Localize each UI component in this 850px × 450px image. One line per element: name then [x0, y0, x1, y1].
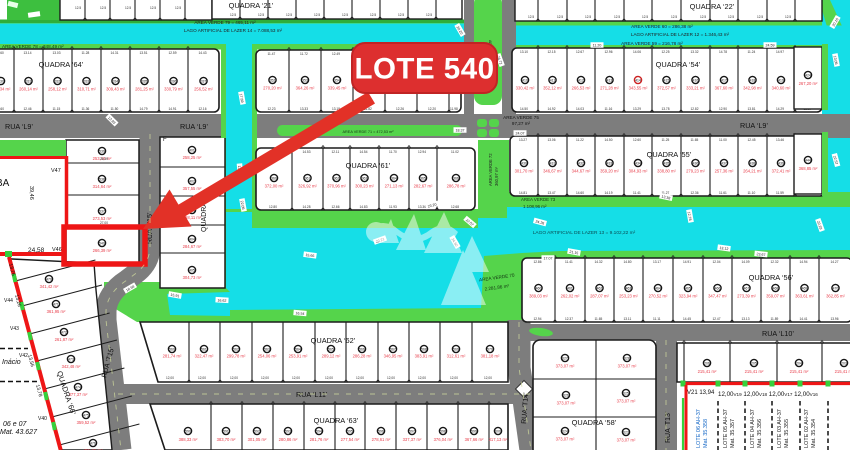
- svg-text:273,39 m²: 273,39 m²: [737, 294, 756, 299]
- svg-text:595: 595: [347, 429, 353, 433]
- svg-text:439: 439: [778, 161, 784, 165]
- svg-text:625: 625: [623, 391, 629, 395]
- svg-text:12.60: 12.60: [633, 138, 641, 142]
- svg-text:333,21 m²: 333,21 m²: [686, 86, 705, 91]
- svg-text:330: 330: [0, 79, 4, 83]
- svg-text:12.94: 12.94: [418, 150, 426, 154]
- svg-text:312,61 m²: 312,61 m²: [447, 354, 466, 359]
- svg-text:Mat. 35.356: Mat. 35.356: [757, 419, 763, 448]
- svg-text:332: 332: [55, 79, 61, 83]
- svg-text:12.36: 12.36: [691, 191, 699, 195]
- svg-text:260,14 m²: 260,14 m²: [19, 87, 38, 92]
- svg-text:24.59: 24.59: [766, 44, 775, 48]
- svg-text:338,80 m²: 338,80 m²: [657, 169, 676, 174]
- svg-text:430: 430: [521, 161, 527, 165]
- svg-text:12,00: 12,00: [230, 376, 238, 380]
- svg-text:16.54: 16.54: [295, 311, 304, 316]
- svg-text:12.47: 12.47: [713, 317, 721, 321]
- svg-text:12,00: 12,00: [292, 376, 300, 380]
- svg-text:AREA VERDE 73: AREA VERDE 73: [521, 197, 556, 202]
- svg-text:12.5: 12.5: [700, 15, 706, 19]
- svg-text:17.07: 17.07: [544, 257, 553, 261]
- svg-text:LOTE 05 AH-37: LOTE 05 AH-37: [723, 409, 729, 448]
- svg-text:13.17: 13.17: [653, 260, 661, 264]
- svg-text:472: 472: [61, 330, 67, 334]
- svg-text:337,37 m²: 337,37 m²: [403, 437, 422, 442]
- svg-text:538: 538: [99, 177, 105, 181]
- svg-text:362,85 m²: 362,85 m²: [826, 294, 845, 299]
- svg-text:12.68: 12.68: [451, 205, 459, 209]
- svg-text:12,00: 12,00: [325, 376, 333, 380]
- svg-text:AREA VERDE 71 = 472,53 m²: AREA VERDE 71 = 472,53 m²: [343, 130, 395, 134]
- svg-text:Mat. 35.354: Mat. 35.354: [811, 419, 817, 448]
- svg-text:14.50: 14.50: [605, 138, 613, 142]
- svg-text:11.20: 11.20: [593, 44, 602, 48]
- svg-text:253,23 m²: 253,23 m²: [619, 294, 638, 299]
- svg-text:215,41 m²: 215,41 m²: [835, 369, 850, 374]
- svg-text:12.5: 12.5: [614, 15, 620, 19]
- svg-text:AREA VERDE 75: AREA VERDE 75: [503, 115, 539, 120]
- svg-text:LOTE 03 AH-37: LOTE 03 AH-37: [777, 409, 783, 448]
- svg-text:12.32: 12.32: [771, 260, 779, 264]
- svg-text:11.11: 11.11: [653, 317, 661, 321]
- svg-text:QUADRA ‘56’: QUADRA ‘56’: [749, 273, 794, 282]
- svg-text:V44: V44: [4, 298, 13, 304]
- svg-text:12,00: 12,00: [261, 376, 269, 380]
- svg-text:373,07 m²: 373,07 m²: [556, 437, 575, 442]
- svg-text:13.29: 13.29: [633, 107, 641, 111]
- svg-text:13.51: 13.51: [140, 51, 148, 55]
- svg-text:563: 563: [264, 347, 270, 351]
- svg-text:476: 476: [90, 441, 96, 445]
- svg-text:435: 435: [664, 161, 670, 165]
- svg-text:381,18 m²: 381,18 m²: [481, 354, 500, 359]
- svg-text:13.47: 13.47: [548, 191, 556, 195]
- svg-text:11.22: 11.22: [576, 138, 584, 142]
- svg-text:566: 566: [359, 347, 365, 351]
- svg-text:12.5: 12.5: [342, 13, 348, 17]
- svg-text:326,92 m²: 326,92 m²: [298, 184, 317, 189]
- svg-text:467: 467: [744, 286, 750, 290]
- svg-text:13.10: 13.10: [520, 50, 528, 54]
- svg-text:304,93 m²: 304,93 m²: [629, 169, 648, 174]
- svg-text:405: 405: [189, 268, 195, 272]
- svg-text:594: 594: [316, 429, 322, 433]
- svg-text:12.5: 12.5: [642, 15, 648, 19]
- svg-text:286,78 m²: 286,78 m²: [447, 184, 466, 189]
- svg-text:11.70: 11.70: [389, 150, 397, 154]
- svg-text:12.5: 12.5: [100, 6, 106, 10]
- svg-text:344,67 m²: 344,67 m²: [572, 169, 591, 174]
- svg-text:13.32: 13.32: [691, 50, 699, 54]
- svg-text:12.5: 12.5: [728, 15, 734, 19]
- svg-text:333: 333: [84, 79, 90, 83]
- svg-text:258,12 m²: 258,12 m²: [48, 87, 67, 92]
- svg-text:11.89: 11.89: [771, 317, 779, 321]
- svg-text:12.59: 12.59: [169, 51, 177, 55]
- svg-text:335: 335: [142, 79, 148, 83]
- svg-text:309,43 m²: 309,43 m²: [106, 87, 125, 92]
- svg-text:11.60: 11.60: [0, 51, 4, 55]
- svg-text:97,27 m²: 97,27 m²: [512, 121, 531, 126]
- svg-text:287,07 m²: 287,07 m²: [590, 294, 609, 299]
- svg-text:419: 419: [778, 78, 784, 82]
- svg-text:353: 353: [302, 78, 308, 82]
- svg-text:628: 628: [624, 356, 630, 360]
- svg-text:1.108,96 m²: 1.108,96 m²: [523, 204, 547, 209]
- svg-text:383,91 m²: 383,91 m²: [415, 354, 434, 359]
- svg-text:12,00: 12,00: [198, 376, 206, 380]
- svg-text:286,28 m²: 286,28 m²: [353, 354, 372, 359]
- svg-text:14.60: 14.60: [576, 191, 584, 195]
- svg-text:271,13 m²: 271,13 m²: [385, 184, 404, 189]
- svg-text:14.19: 14.19: [605, 191, 613, 195]
- svg-text:340,60 m²: 340,60 m²: [772, 86, 791, 91]
- svg-text:12.94: 12.94: [534, 317, 542, 321]
- svg-text:12,00: 12,00: [484, 376, 492, 380]
- svg-text:264,21 m²: 264,21 m²: [743, 169, 762, 174]
- svg-text:471: 471: [53, 302, 59, 306]
- svg-text:277,54 m²: 277,54 m²: [341, 437, 360, 442]
- svg-text:359,52 m²: 359,52 m²: [77, 420, 96, 425]
- svg-text:592: 592: [254, 429, 260, 433]
- svg-text:14.53: 14.53: [303, 150, 311, 154]
- svg-text:12,00: 12,00: [387, 376, 395, 380]
- svg-text:256,52 m²: 256,52 m²: [194, 87, 213, 92]
- svg-text:12.86: 12.86: [534, 260, 542, 264]
- svg-text:433: 433: [607, 161, 613, 165]
- svg-text:11.36: 11.36: [82, 107, 90, 111]
- svg-text:14.03: 14.03: [576, 107, 584, 111]
- svg-text:373,07 m²: 373,07 m²: [617, 399, 636, 404]
- svg-text:QUADRA ‘58’: QUADRA ‘58’: [572, 418, 617, 427]
- svg-text:215,41 m²: 215,41 m²: [698, 369, 717, 374]
- svg-text:565: 565: [328, 347, 334, 351]
- svg-text:410: 410: [522, 78, 528, 82]
- svg-text:14.28: 14.28: [303, 205, 311, 209]
- svg-text:317,13 m²: 317,13 m²: [489, 437, 508, 442]
- svg-text:13.33: 13.33: [300, 107, 308, 111]
- svg-text:RUA ‘L9’: RUA ‘L9’: [740, 121, 768, 130]
- svg-text:14.32: 14.32: [595, 260, 603, 264]
- svg-text:363: 363: [362, 176, 368, 180]
- svg-text:13.27: 13.27: [519, 138, 527, 142]
- svg-text:V40: V40: [38, 416, 47, 422]
- svg-text:473: 473: [68, 357, 74, 361]
- svg-text:12.25: 12.25: [662, 50, 670, 54]
- svg-text:346,67 m²: 346,67 m²: [543, 169, 562, 174]
- svg-text:13.46: 13.46: [776, 138, 784, 142]
- svg-text:401: 401: [189, 148, 195, 152]
- svg-text:11.00: 11.00: [719, 138, 727, 142]
- svg-text:14.78: 14.78: [719, 50, 727, 54]
- svg-text:16.62: 16.62: [217, 298, 226, 302]
- svg-text:11.16: 11.16: [605, 107, 613, 111]
- svg-text:12.49: 12.49: [332, 52, 340, 56]
- svg-text:12.5: 12.5: [175, 6, 181, 10]
- svg-text:444: 444: [805, 158, 811, 162]
- svg-text:416: 416: [693, 78, 699, 82]
- svg-text:QUADRA: QUADRA: [201, 202, 208, 232]
- svg-text:11.24: 11.24: [748, 50, 756, 54]
- svg-text:599: 599: [471, 429, 477, 433]
- svg-text:295,34 m²: 295,34 m²: [0, 87, 11, 92]
- svg-text:11.15: 11.15: [53, 107, 61, 111]
- svg-text:14.80: 14.80: [624, 260, 632, 264]
- svg-text:206: 206: [704, 361, 710, 365]
- svg-text:12.37: 12.37: [565, 317, 573, 321]
- svg-text:279,23 m²: 279,23 m²: [686, 169, 705, 174]
- svg-text:569: 569: [453, 347, 459, 351]
- svg-text:337: 337: [201, 79, 207, 83]
- svg-text:11.28: 11.28: [82, 51, 90, 55]
- svg-text:14.97: 14.97: [776, 50, 784, 54]
- svg-text:539: 539: [99, 149, 105, 153]
- svg-text:11.10: 11.10: [748, 191, 756, 195]
- svg-text:12.5: 12.5: [398, 13, 404, 17]
- svg-text:301,70 m²: 301,70 m²: [515, 169, 534, 174]
- svg-text:415: 415: [664, 78, 670, 82]
- svg-text:14.09: 14.09: [742, 260, 750, 264]
- svg-text:12.45: 12.45: [748, 138, 756, 142]
- svg-text:11.25: 11.25: [662, 138, 670, 142]
- svg-text:V21 13,94: V21 13,94: [687, 390, 715, 396]
- svg-text:368,85 m²: 368,85 m²: [799, 166, 818, 171]
- svg-text:270,52 m²: 270,52 m²: [649, 294, 668, 299]
- svg-text:475: 475: [83, 413, 89, 417]
- svg-text:331: 331: [26, 79, 32, 83]
- svg-text:281,25 m²: 281,25 m²: [135, 87, 154, 92]
- svg-text:13.11: 13.11: [624, 317, 632, 321]
- svg-text:LOTE 04 AH-37: LOTE 04 AH-37: [750, 409, 756, 448]
- svg-text:V47: V47: [51, 168, 61, 174]
- svg-text:342,98 m²: 342,98 m²: [743, 86, 762, 91]
- svg-text:361: 361: [305, 176, 311, 180]
- svg-text:13.60: 13.60: [0, 107, 4, 111]
- svg-text:464: 464: [655, 286, 661, 290]
- svg-text:14.81: 14.81: [519, 191, 527, 195]
- svg-text:QUADRA ‘22’: QUADRA ‘22’: [690, 2, 735, 11]
- svg-text:12.5: 12.5: [125, 6, 131, 10]
- svg-text:568: 568: [421, 347, 427, 351]
- svg-text:412: 412: [578, 78, 584, 82]
- svg-text:12.5: 12.5: [671, 15, 677, 19]
- svg-text:LOTE 540: LOTE 540: [354, 53, 494, 86]
- svg-text:QUADRA ‘55’: QUADRA ‘55’: [647, 150, 692, 159]
- svg-text:V46: V46: [52, 247, 62, 253]
- svg-text:336: 336: [171, 79, 177, 83]
- svg-text:346,95 m²: 346,95 m²: [384, 354, 403, 359]
- svg-text:373,07 m²: 373,07 m²: [556, 364, 575, 369]
- svg-text:262,02 m²: 262,02 m²: [561, 294, 580, 299]
- svg-text:354: 354: [334, 78, 340, 82]
- svg-text:299,78 m²: 299,78 m²: [227, 354, 246, 359]
- svg-text:12.04: 12.04: [713, 260, 721, 264]
- svg-text:463: 463: [626, 286, 632, 290]
- svg-text:14.91: 14.91: [169, 107, 177, 111]
- svg-text:12,00: 12,00: [166, 376, 174, 380]
- svg-text:215,41 m²: 215,41 m²: [790, 369, 809, 374]
- svg-text:314,64 m²: 314,64 m²: [93, 184, 112, 189]
- svg-text:06 e 07: 06 e 07: [3, 421, 27, 428]
- svg-text:11.47: 11.47: [268, 52, 276, 56]
- svg-text:12.16: 12.16: [199, 107, 207, 111]
- svg-text:13.96: 13.96: [831, 317, 839, 321]
- svg-text:12.5: 12.5: [314, 13, 320, 17]
- svg-text:567: 567: [390, 347, 396, 351]
- svg-text:12.11: 12.11: [332, 150, 340, 154]
- svg-text:12.5: 12.5: [426, 13, 432, 17]
- svg-text:281,76 m²: 281,76 m²: [310, 437, 329, 442]
- svg-text:14.91: 14.91: [683, 260, 691, 264]
- svg-text:Mat. 35.358: Mat. 35.358: [703, 419, 709, 448]
- svg-text:469: 469: [802, 286, 808, 290]
- svg-text:626: 626: [563, 393, 569, 397]
- svg-text:474: 474: [75, 385, 81, 389]
- svg-text:361,95 m²: 361,95 m²: [47, 309, 66, 314]
- svg-text:418: 418: [750, 78, 756, 82]
- svg-text:367,66 m²: 367,66 m²: [465, 437, 484, 442]
- svg-text:12.5: 12.5: [585, 15, 591, 19]
- svg-text:278,61 m²: 278,61 m²: [372, 437, 391, 442]
- svg-text:258,25 m²: 258,25 m²: [183, 155, 202, 160]
- svg-text:424: 424: [805, 73, 811, 77]
- svg-text:254,06 m²: 254,06 m²: [258, 354, 277, 359]
- svg-text:364,26 m²: 364,26 m²: [296, 86, 315, 91]
- svg-text:AREA VERDE 72: AREA VERDE 72: [488, 153, 493, 186]
- svg-text:12.96: 12.96: [605, 50, 613, 54]
- svg-text:12.5: 12.5: [757, 15, 763, 19]
- svg-text:436: 436: [693, 161, 699, 165]
- svg-text:364: 364: [391, 176, 397, 180]
- svg-text:RUA ‘L11’: RUA ‘L11’: [296, 390, 328, 399]
- svg-text:561: 561: [201, 347, 207, 351]
- svg-text:383,70 m²: 383,70 m²: [217, 437, 236, 442]
- svg-text:11.61: 11.61: [719, 191, 727, 195]
- svg-text:431: 431: [550, 161, 556, 165]
- svg-text:GLEBA: GLEBA: [0, 178, 10, 189]
- svg-text:334: 334: [113, 79, 119, 83]
- svg-text:560: 560: [169, 347, 175, 351]
- svg-text:266,39 m²: 266,39 m²: [93, 248, 112, 253]
- svg-text:13.14: 13.14: [24, 51, 32, 55]
- svg-text:V43: V43: [10, 326, 19, 332]
- svg-text:12.5: 12.5: [785, 15, 791, 19]
- svg-text:12,00V19 12,00V18 12,00V17 12,: 12,00V19 12,00V18 12,00V17 12,00V16: [718, 391, 818, 398]
- svg-text:11.98: 11.98: [450, 107, 458, 111]
- svg-text:LAGO ARTIFICIAL DE LAZER 13 =: LAGO ARTIFICIAL DE LAZER 13 = 9.102,22 m…: [533, 230, 636, 236]
- svg-text:39,46: 39,46: [28, 186, 34, 200]
- svg-text:600: 600: [495, 429, 501, 433]
- svg-text:590: 590: [185, 429, 191, 433]
- svg-text:591: 591: [223, 429, 229, 433]
- svg-text:372,57 m²: 372,57 m²: [657, 86, 676, 91]
- svg-text:411: 411: [550, 78, 556, 82]
- svg-text:11.41: 11.41: [565, 260, 573, 264]
- svg-text:QUADRA ‘64’: QUADRA ‘64’: [39, 60, 84, 69]
- svg-text:12.66: 12.66: [332, 205, 340, 209]
- svg-text:372,00 m²: 372,00 m²: [265, 184, 284, 189]
- svg-text:267,20 m²: 267,20 m²: [799, 81, 818, 86]
- svg-text:284,67 m²: 284,67 m²: [183, 244, 202, 249]
- svg-text:18.37: 18.37: [456, 129, 465, 133]
- svg-text:357,55 m²: 357,55 m²: [183, 186, 202, 191]
- svg-text:QUADRA ‘54’: QUADRA ‘54’: [656, 60, 701, 69]
- svg-text:12.5: 12.5: [528, 15, 534, 19]
- svg-text:RUA ‘L9’: RUA ‘L9’: [180, 122, 208, 131]
- svg-text:363,61 m²: 363,61 m²: [795, 294, 814, 299]
- svg-text:14.54: 14.54: [360, 150, 368, 154]
- svg-text:24,58: 24,58: [28, 247, 45, 254]
- svg-text:13.81: 13.81: [748, 107, 756, 111]
- svg-text:12.15: 12.15: [548, 50, 556, 54]
- svg-text:438: 438: [750, 161, 756, 165]
- svg-text:11.65: 11.65: [595, 317, 603, 321]
- svg-text:AREA VERDE 60 = 286,38 m²: AREA VERDE 60 = 286,38 m²: [631, 24, 693, 29]
- svg-text:14.06: 14.06: [633, 50, 641, 54]
- svg-text:432: 432: [578, 161, 584, 165]
- svg-text:12.82: 12.82: [691, 107, 699, 111]
- svg-text:AREA VERDE 59 = 216,78 m²: AREA VERDE 59 = 216,78 m²: [621, 41, 683, 46]
- svg-text:12.5: 12.5: [230, 13, 236, 17]
- svg-text:372,41 m²: 372,41 m²: [772, 169, 791, 174]
- svg-text:434: 434: [635, 161, 641, 165]
- svg-text:Mat. 35.357: Mat. 35.357: [730, 419, 736, 448]
- svg-text:13.36: 13.36: [418, 205, 426, 209]
- svg-text:470: 470: [833, 286, 839, 290]
- svg-text:11.65: 11.65: [691, 138, 699, 142]
- svg-text:570: 570: [487, 347, 493, 351]
- svg-text:598: 598: [440, 429, 446, 433]
- svg-text:271,28 m²: 271,28 m²: [600, 86, 619, 91]
- svg-text:342,48 m²: 342,48 m²: [62, 364, 81, 369]
- svg-text:LOTE 06 AH-37: LOTE 06 AH-37: [696, 409, 702, 448]
- svg-text:310,71 m²: 310,71 m²: [77, 87, 96, 92]
- svg-text:215,41 m²: 215,41 m²: [745, 369, 764, 374]
- svg-text:26,39: 26,39: [100, 157, 108, 161]
- svg-text:QUADRA ‘61’: QUADRA ‘61’: [346, 161, 391, 170]
- svg-text:12,00: 12,00: [418, 376, 426, 380]
- svg-text:Mat. 43.627: Mat. 43.627: [0, 429, 38, 436]
- svg-text:352: 352: [270, 78, 276, 82]
- svg-text:11.93: 11.93: [389, 205, 397, 209]
- svg-text:389,03 m²: 389,03 m²: [529, 294, 548, 299]
- svg-text:347,47 m²: 347,47 m²: [708, 294, 727, 299]
- svg-text:596: 596: [378, 429, 384, 433]
- svg-text:270,20 m²: 270,20 m²: [263, 86, 282, 91]
- svg-text:266,53 m²: 266,53 m²: [572, 86, 591, 91]
- svg-text:24.07: 24.07: [516, 132, 525, 136]
- svg-text:301,05 m²: 301,05 m²: [248, 437, 267, 442]
- svg-text:Inácio: Inácio: [2, 359, 21, 366]
- svg-text:564: 564: [295, 347, 301, 351]
- svg-text:RUA ‘L9’: RUA ‘L9’: [5, 122, 33, 131]
- svg-text:623: 623: [623, 430, 629, 434]
- svg-text:359,07 m²: 359,07 m²: [766, 294, 785, 299]
- svg-text:537: 537: [99, 209, 105, 213]
- svg-text:470: 470: [46, 277, 52, 281]
- svg-text:540: 540: [99, 241, 105, 245]
- svg-text:11.72: 11.72: [300, 52, 308, 56]
- svg-text:289,12 m²: 289,12 m²: [322, 354, 341, 359]
- svg-text:330,42 m²: 330,42 m²: [516, 86, 535, 91]
- svg-text:282,67 m²: 282,67 m²: [414, 184, 433, 189]
- svg-text:12.5: 12.5: [75, 6, 81, 10]
- svg-text:462: 462: [597, 286, 603, 290]
- svg-text:417: 417: [721, 78, 727, 82]
- svg-text:203: 203: [841, 361, 847, 365]
- svg-text:12.26: 12.26: [396, 107, 404, 111]
